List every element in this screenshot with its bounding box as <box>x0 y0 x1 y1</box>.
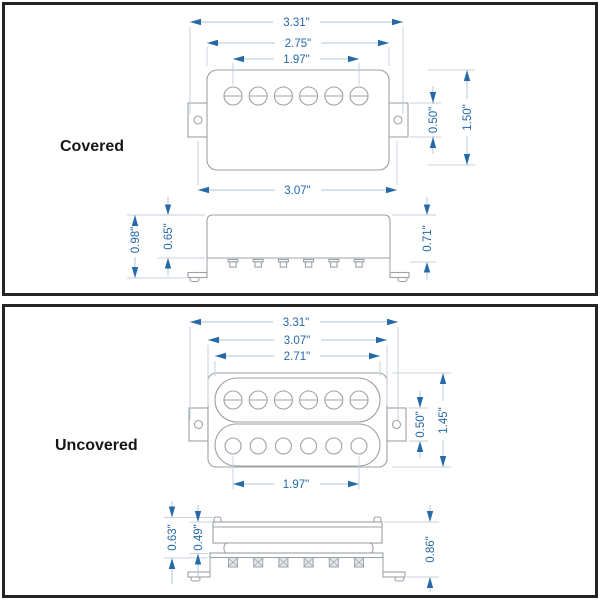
covered-top-view <box>188 70 408 170</box>
covered-side-view <box>188 215 409 282</box>
screw-tips-row <box>229 558 364 568</box>
uncovered-side-view <box>188 517 405 581</box>
lower-flange-profile <box>224 543 373 554</box>
dim-right-height: 0.71" <box>422 197 434 280</box>
dim-overall-height: 0.86" <box>425 505 437 592</box>
dimension-label: 0.63" <box>167 524 179 550</box>
dimension-label: 2.75" <box>285 38 311 50</box>
dim-pole-span: 1.97" <box>233 479 359 491</box>
dimension-label: 0.50" <box>428 107 440 133</box>
dim-bobbin-width: 2.71" <box>215 351 380 363</box>
mounting-hole-left <box>195 421 203 429</box>
mounting-leg-right <box>390 258 409 282</box>
dimension-label: 3.07" <box>284 185 310 197</box>
dimension-label: 3.31" <box>283 317 309 329</box>
section-label-covered: Covered <box>60 138 124 155</box>
dimension-label: 1.97" <box>283 479 309 491</box>
dim-pole-span: 1.97" <box>233 54 359 66</box>
screw-tips-row <box>228 260 364 268</box>
dim-bobbin-height: 0.49" <box>193 505 205 578</box>
bobbin-profile <box>213 522 382 543</box>
dimension-label: 3.07" <box>284 335 310 347</box>
pickup-cover-body <box>207 70 389 170</box>
dimension-label: 3.31" <box>283 17 309 29</box>
dimension-label: 0.50" <box>415 411 427 437</box>
dim-overall-height: 0.98" <box>128 215 143 278</box>
mounting-hole-right <box>393 421 401 429</box>
mounting-hole-left <box>194 116 202 124</box>
dim-base-width: 3.07" <box>208 335 387 347</box>
mounting-leg-right <box>383 558 405 582</box>
uncovered-top-view <box>189 373 406 467</box>
mounting-hole-right <box>394 116 402 124</box>
covered-panel: Covered <box>2 2 598 296</box>
dimension-label: 0.49" <box>193 524 205 550</box>
dim-cover-width: 2.75" <box>207 38 389 50</box>
dim-base-width: 3.07" <box>198 185 397 197</box>
dim-body-height: 1.50" <box>460 70 475 165</box>
mounting-leg-left <box>188 258 207 282</box>
pickup-cover-profile <box>207 215 390 258</box>
dim-left-outer-height: 0.63" <box>167 501 179 584</box>
dim-ear-height: 0.50" <box>426 86 441 154</box>
uncovered-panel: Uncovered <box>2 304 598 598</box>
dimension-label: 2.71" <box>284 351 310 363</box>
dimension-label: 1.45" <box>438 407 450 433</box>
dimension-label: 0.65" <box>163 223 175 249</box>
section-label-uncovered: Uncovered <box>55 437 138 454</box>
dimension-label: 0.71" <box>422 225 434 251</box>
dim-body-height: 1.45" <box>436 373 451 467</box>
dimension-label: 0.86" <box>425 536 437 562</box>
dim-ear-height: 0.50" <box>415 391 427 458</box>
dimension-label: 1.50" <box>462 104 474 130</box>
uncovered-technical-drawing: Uncovered <box>5 307 595 595</box>
dimension-label: 1.97" <box>283 54 309 66</box>
baseplate-profile <box>210 553 383 558</box>
dim-mount-hole-span: 3.31" <box>190 317 398 329</box>
pickup-dimension-sheet: Covered <box>0 0 600 600</box>
covered-technical-drawing: Covered <box>5 5 595 293</box>
dim-mount-hole-span: 3.31" <box>190 17 403 29</box>
dimension-label: 0.98" <box>130 227 142 253</box>
dim-cover-height: 0.65" <box>163 197 175 276</box>
